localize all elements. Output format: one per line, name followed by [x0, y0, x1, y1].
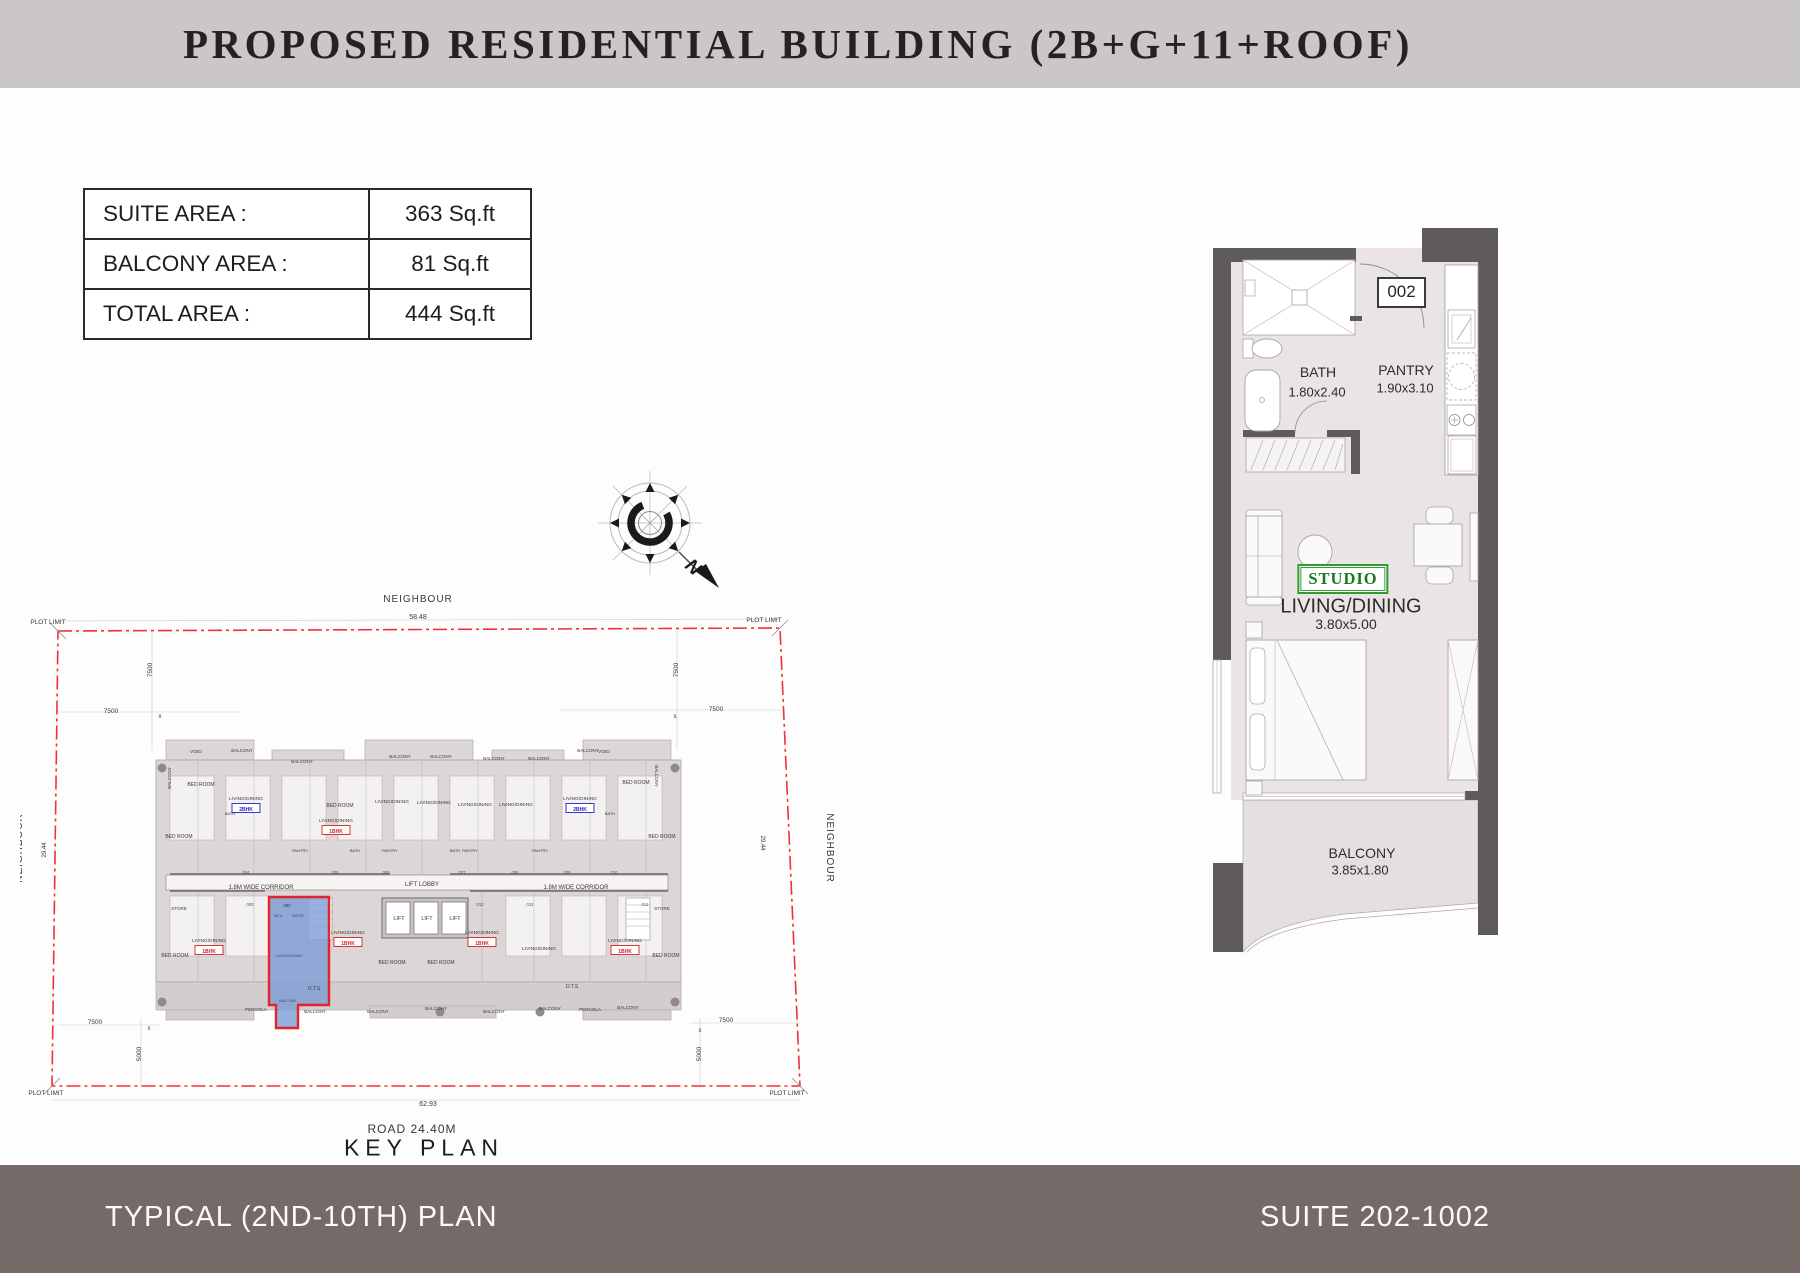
unit-type-badge-label: 1BHK	[329, 829, 343, 835]
keyplan-label: 29.44	[42, 842, 48, 858]
suite-area-value: 363 Sq.ft	[369, 189, 531, 239]
keyplan-label: BED ROOM	[165, 834, 192, 840]
keyplan-label: LIVING/DINING	[465, 930, 499, 936]
keyplan-label: LIVING/DINING	[319, 818, 353, 824]
keyplan-label: BALCONY	[430, 754, 452, 759]
keyplan-label: 012	[527, 902, 535, 907]
keyplan-label: BALCONY	[304, 1009, 326, 1014]
keyplan-label: BED ROOM	[427, 960, 454, 966]
keyplan-label: NEIGHBOUR	[383, 594, 453, 605]
page-title: PROPOSED RESIDENTIAL BUILDING (2B+G+11+R…	[183, 0, 1413, 88]
unit-type-badge-label: 1BHK	[618, 949, 632, 955]
suite-range-label: SUITE 202-1002	[1260, 1165, 1490, 1269]
key-plan-drawing: NEIGHBOURNEIGHBOURNEIGHBOUR58.4862.93PLO…	[20, 590, 850, 1165]
table-row: BALCONY AREA : 81 Sq.ft	[84, 239, 531, 289]
keyplan-label: BALCONY	[367, 1009, 389, 1014]
keyplan-label: 7500	[147, 662, 154, 677]
keyplan-label: PANTRY	[292, 914, 306, 918]
keyplan-label: LIVING/DINING	[417, 800, 451, 806]
plan-type-label: TYPICAL (2ND-10TH) PLAN	[105, 1165, 498, 1269]
keyplan-label: 58.48	[409, 614, 427, 621]
keyplan-label: VOID	[598, 749, 610, 755]
keyplan-label: PANTRY	[382, 848, 398, 853]
keyplan-label: 006	[383, 870, 391, 875]
keyplan-label: LIVING/DINING	[276, 954, 303, 958]
keyplan-label: LIFT	[421, 916, 433, 922]
keyplan-label: BALCONY	[389, 754, 411, 759]
keyplan-label: PERGOLA	[579, 1007, 601, 1012]
keyplan-label: BALCONY	[279, 999, 297, 1003]
keyplan-label: PANTRY	[532, 848, 548, 853]
keyplan-label: BALCONY	[167, 767, 172, 789]
keyplan-label: LIVING/DINING	[608, 938, 642, 944]
bath-label: BATH	[1300, 364, 1336, 380]
keyplan-label: BED ROOM	[648, 834, 675, 840]
keyplan-label: 004	[243, 870, 251, 875]
keyplan-label: O.T.S	[566, 984, 579, 990]
keyplan-label: PLOT LIMIT	[746, 617, 781, 624]
keyplan-label: 009	[564, 870, 572, 875]
keyplan-label: 010	[611, 870, 619, 875]
keyplan-label: LIFT	[393, 916, 405, 922]
balcony-dims: 3.85x1.80	[1331, 863, 1388, 878]
suite-area-label: SUITE AREA :	[84, 189, 369, 239]
keyplan-label: BALCONY	[528, 756, 550, 761]
keyplan-label: 5000	[696, 1046, 703, 1061]
keyplan-label: O.T.S	[308, 986, 321, 992]
keyplan-label: BALCONY	[617, 1005, 639, 1010]
plan-sheet: PROPOSED RESIDENTIAL BUILDING (2B+G+11+R…	[0, 0, 1800, 1273]
keyplan-label: x	[159, 714, 162, 720]
pantry-dims: 1.90x3.10	[1376, 381, 1433, 396]
keyplan-label: BALCONY	[291, 759, 313, 764]
keyplan-label: 003	[247, 902, 255, 907]
keyplan-label: NEIGHBOUR	[824, 813, 835, 883]
keyplan-label: 007	[459, 870, 467, 875]
keyplan-label: PLOT LIMIT	[769, 1090, 804, 1097]
keyplan-label: BED ROOM	[161, 953, 188, 959]
keyplan-label: LIFT LOBBY	[405, 882, 439, 888]
keyplan-label: LIVING/DINING	[522, 946, 556, 952]
keyplan-label: LIVING/DINING	[458, 802, 492, 808]
balcony-area-label: BALCONY AREA :	[84, 239, 369, 289]
keyplan-label: LIVING/DINING	[563, 796, 597, 802]
keyplan-label: 1.8M WIDE CORRIDOR	[228, 885, 294, 891]
keyplan-label: 5000	[136, 1046, 143, 1061]
keyplan-label: 7500	[104, 708, 119, 715]
keyplan-label: 62.93	[419, 1101, 437, 1108]
keyplan-label: LIVING/DINING	[331, 930, 365, 936]
keyplan-label: x	[148, 1026, 151, 1032]
title-bar: PROPOSED RESIDENTIAL BUILDING (2B+G+11+R…	[0, 0, 1800, 88]
keyplan-label: LIVING/DINING	[229, 796, 263, 802]
keyplan-label: LIVING/DINING	[192, 938, 226, 944]
unit-type-badge-label: 2BHK	[573, 807, 587, 813]
balcony-label: BALCONY	[1329, 845, 1396, 861]
unit-type-badge-label: 2BHK	[239, 807, 253, 813]
keyplan-label: PANTRY	[292, 848, 308, 853]
keyplan-label: BED ROOM	[622, 780, 649, 786]
keyplan-label: PLOT LIMIT	[30, 619, 65, 626]
keyplan-label: 002	[284, 903, 292, 908]
north-compass-icon: N	[585, 455, 735, 610]
keyplan-label: 1.8M WIDE CORRIDOR	[543, 885, 609, 891]
studio-type-label: STUDIO	[1300, 567, 1385, 591]
bath-dims: 1.80x2.40	[1288, 385, 1345, 400]
keyplan-label: 008	[512, 870, 520, 875]
keyplan-label: BALCONY	[483, 756, 505, 761]
keyplan-label: PERGOLA	[245, 1007, 267, 1012]
keyplan-label: LIVING/DINING	[375, 799, 409, 805]
total-area-label: TOTAL AREA :	[84, 289, 369, 339]
keyplan-label: 29.44	[759, 835, 765, 851]
keyplan-label: STORE	[171, 906, 186, 911]
unit-type-badge-label: 1BHK	[202, 949, 216, 955]
keyplan-label: 7500	[719, 1017, 734, 1024]
balcony-area-value: 81 Sq.ft	[369, 239, 531, 289]
unit-number-badge: 002	[1377, 277, 1426, 308]
keyplan-label: BED ROOM	[652, 953, 679, 959]
keyplan-label: BATH	[450, 848, 460, 853]
keyplan-label: VOID	[190, 749, 202, 755]
footer-bar: TYPICAL (2ND-10TH) PLAN SUITE 202-1002	[0, 1165, 1800, 1273]
studio-type-badge: STUDIO	[1297, 564, 1388, 594]
building-footprint	[156, 740, 681, 1020]
keyplan-label: BALCONY	[539, 1006, 561, 1011]
keyplan-label: 013	[477, 902, 485, 907]
table-row: TOTAL AREA : 444 Sq.ft	[84, 289, 531, 339]
keyplan-label: PLOT LIMIT	[28, 1090, 63, 1097]
keyplan-label: BALCONY	[425, 1006, 447, 1011]
key-plan-title: KEY PLAN	[344, 1135, 504, 1162]
keyplan-label: 7500	[88, 1019, 103, 1026]
keyplan-label: BALCONY	[654, 765, 659, 787]
keyplan-label: BATH	[274, 914, 283, 918]
keyplan-label: BATH	[605, 811, 615, 816]
keyplan-label: LIFT	[449, 916, 461, 922]
pantry-label: PANTRY	[1378, 362, 1434, 378]
keyplan-label: BALCONY	[577, 748, 599, 753]
keyplan-label: BED ROOM	[326, 803, 353, 809]
table-row: SUITE AREA : 363 Sq.ft	[84, 189, 531, 239]
living-dining-dims: 3.80x5.00	[1315, 616, 1377, 632]
keyplan-label: BALCONY	[483, 1009, 505, 1014]
keyplan-label: LIVING/DINING	[499, 802, 533, 808]
keyplan-label: 7500	[673, 662, 680, 677]
keyplan-label: BED ROOM	[187, 782, 214, 788]
keyplan-label: BALCONY	[231, 748, 253, 753]
keyplan-label: NEIGHBOUR	[20, 813, 25, 883]
keyplan-label: x	[674, 714, 677, 720]
keyplan-label: 005	[332, 870, 340, 875]
keyplan-label: BED ROOM	[378, 960, 405, 966]
keyplan-label: PANTRY	[462, 848, 478, 853]
keyplan-label: BATH	[350, 848, 360, 853]
keyplan-label: 011	[642, 902, 649, 907]
unit-type-badge-label: 1BHK	[341, 941, 355, 947]
keyplan-label: STORE	[654, 906, 669, 911]
total-area-value: 444 Sq.ft	[369, 289, 531, 339]
keyplan-label: 7500	[709, 706, 724, 713]
unit-type-badge-label: 1BHK	[475, 941, 489, 947]
keyplan-label: x	[699, 1028, 702, 1034]
area-table: SUITE AREA : 363 Sq.ft BALCONY AREA : 81…	[83, 188, 532, 340]
